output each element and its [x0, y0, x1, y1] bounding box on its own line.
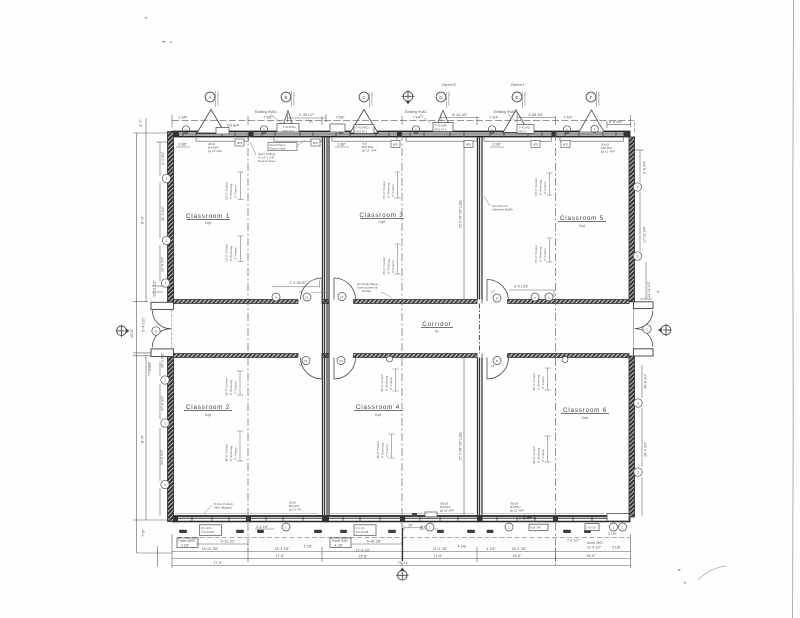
svg-text:5' Shelving: 5' Shelving: [537, 375, 541, 390]
svg-text:Existing HVAC: Existing HVAC: [494, 110, 517, 114]
svg-text:15'-0" Center: 15'-0" Center: [225, 182, 229, 200]
svg-text:1: 1: [166, 239, 168, 243]
svg-text:10'-2 5/8": 10'-2 5/8": [161, 352, 165, 368]
svg-text:2" Frame: 2" Frame: [543, 248, 547, 261]
svg-text:11'-4 1/2": 11'-4 1/2": [587, 546, 602, 550]
svg-text:3 3/8": 3 3/8": [178, 143, 188, 147]
svg-text:5' Shelving: 5' Shelving: [381, 443, 385, 458]
svg-text:4 1/8": 4 1/8": [486, 547, 496, 551]
svg-text:11'-5 3/4": 11'-5 3/4": [161, 205, 165, 221]
svg-text:10'-11 1/2": 10'-11 1/2": [153, 279, 157, 297]
svg-text:4 1/8": 4 1/8": [612, 546, 622, 550]
svg-text:6P5: 6P5: [563, 143, 569, 147]
svg-text:7 5/8": 7 5/8": [335, 115, 345, 119]
svg-text:@ 12' AFF: @ 12' AFF: [440, 509, 454, 513]
svg-text:Corridor: Corridor: [422, 321, 452, 328]
svg-text:3C: 3C: [309, 120, 314, 124]
svg-text:5' Shelving: 5' Shelving: [539, 180, 543, 195]
svg-text:15'-8": 15'-8": [359, 555, 369, 559]
svg-text:2'-4 3/4": 2'-4 3/4": [161, 151, 165, 165]
svg-text:4 1/8": 4 1/8": [457, 545, 467, 549]
svg-text:DX B/A: DX B/A: [227, 124, 239, 128]
svg-text:Parent 1: Parent 1: [511, 83, 525, 87]
svg-text:20'-6 7/8" VIF Lalsb: 20'-6 7/8" VIF Lalsb: [459, 200, 463, 228]
svg-text:M16 M-1: M16 M-1: [356, 129, 368, 133]
svg-text:15'-4 7/8": 15'-4 7/8": [275, 547, 291, 551]
svg-text:40'-6": 40'-6": [130, 328, 134, 338]
svg-text:1: 1: [164, 422, 166, 426]
svg-text:Classroom: Classroom: [370, 92, 374, 106]
svg-text:@ 12' A2: @ 12' A2: [289, 508, 301, 512]
svg-text:7'-8": 7'-8": [141, 528, 146, 537]
svg-text:Classroom: Classroom: [447, 92, 451, 106]
svg-text:6P5: 6P5: [466, 143, 472, 147]
svg-text:15'-0" Center: 15'-0" Center: [382, 181, 386, 199]
svg-text:2'-6 1/2": 2'-6 1/2": [567, 539, 580, 543]
svg-text:34'-0 3/4": 34'-0 3/4": [160, 449, 164, 465]
svg-text:1: 1: [566, 128, 568, 132]
svg-text:T/A 9/128: T/A 9/128: [201, 530, 214, 534]
svg-text:15'-8": 15'-8": [513, 554, 523, 558]
svg-text:2'-9 1/16": 2'-9 1/16": [514, 285, 530, 289]
svg-text:5' Shelving: 5' Shelving: [229, 246, 233, 261]
svg-text:9: 9: [155, 330, 157, 334]
svg-text:3 3/8": 3 3/8": [178, 115, 188, 119]
svg-text:Return Wall: Return Wall: [270, 147, 286, 151]
svg-text:5' Shelving: 5' Shelving: [229, 380, 233, 395]
svg-text:Adhesive BaPle: Adhesive BaPle: [492, 208, 514, 212]
svg-text:3: 3: [637, 471, 639, 475]
svg-text:M16 M-1: M16 M-1: [435, 127, 447, 131]
svg-text:Parent E: Parent E: [442, 83, 457, 87]
svg-text:B: B: [496, 359, 498, 363]
svg-text:Classroom 4: Classroom 4: [356, 404, 400, 411]
svg-text:A: A: [209, 95, 212, 100]
svg-text:2" Frame: 2" Frame: [391, 184, 395, 197]
svg-text:4'-4 1/4": 4'-4 1/4": [256, 525, 269, 529]
svg-text:5' Shelving: 5' Shelving: [537, 448, 541, 463]
svg-text:Classroom: Classroom: [292, 92, 296, 106]
svg-text:B: B: [496, 296, 498, 300]
svg-text:35'-6" Center: 35'-6" Center: [225, 444, 229, 462]
svg-text:2'-49 1/2": 2'-49 1/2": [299, 113, 315, 117]
svg-text:12': 12': [491, 290, 495, 294]
svg-text:1: 1: [263, 128, 265, 132]
svg-text:1: 1: [166, 177, 168, 181]
svg-text:E: E: [516, 95, 519, 100]
svg-text:12': 12': [491, 364, 495, 368]
svg-text:4 1/8": 4 1/8": [303, 545, 313, 549]
svg-text:15'-0" Center: 15'-0" Center: [534, 245, 538, 263]
svg-text:T/A 9/128: T/A 9/128: [356, 530, 369, 534]
svg-text:5'-8 7/8": 5'-8 7/8": [519, 517, 532, 521]
svg-text:2" Frame: 2" Frame: [234, 247, 238, 260]
svg-text:2" Frame: 2" Frame: [234, 381, 238, 394]
svg-text:1: 1: [164, 483, 166, 487]
svg-text:Classroom 6: Classroom 6: [563, 407, 607, 414]
svg-text:40'-8 3/4": 40'-8 3/4": [644, 373, 648, 389]
svg-text:7 3/4": 7 3/4": [489, 115, 499, 119]
svg-text:4'-8 5/8": 4'-8 5/8": [609, 120, 624, 124]
svg-text:M16 1: M16 1: [519, 129, 528, 133]
svg-text:3 1/8": 3 1/8": [608, 532, 618, 536]
svg-text:2" Frame: 2" Frame: [385, 444, 389, 457]
svg-text:@ 12' AFF: @ 12' AFF: [510, 509, 524, 513]
svg-text:@ 12' AFF: @ 12' AFF: [601, 150, 615, 154]
svg-text:79'-11": 79'-11": [398, 561, 409, 565]
svg-text:Classroom 2: Classroom 2: [186, 404, 230, 411]
svg-text:12': 12': [299, 290, 303, 294]
svg-text:11'-4 1/2": 11'-4 1/2": [356, 549, 371, 553]
svg-text:Vent (lagged): Vent (lagged): [214, 506, 232, 510]
svg-text:1: 1: [594, 127, 596, 131]
svg-text:1: 1: [646, 328, 648, 332]
svg-text:3: 3: [637, 186, 639, 190]
svg-text:2" Frame: 2" Frame: [543, 181, 547, 194]
svg-text:6x8 7/8": 6x8 7/8": [531, 526, 542, 530]
svg-text:9'-19 1/2": 9'-19 1/2": [221, 540, 237, 544]
svg-text:45'-0" Center: 45'-0" Center: [532, 373, 536, 391]
svg-text:2" Frame: 2" Frame: [391, 260, 395, 273]
svg-text:Crpt: Crpt: [579, 224, 585, 228]
svg-text:2" Frame: 2" Frame: [234, 185, 238, 198]
svg-text:5'-4 1/2": 5'-4 1/2": [141, 317, 146, 332]
svg-text:6P5: 6P5: [313, 141, 319, 145]
svg-text:8'-4": 8'-4": [140, 434, 145, 443]
svg-text:7'-4 15/16": 7'-4 15/16": [290, 281, 307, 285]
svg-text:Crpt: Crpt: [582, 416, 588, 420]
svg-text:Classroom 3: Classroom 3: [359, 212, 403, 219]
svg-text:17'-11 3/4": 17'-11 3/4": [643, 225, 647, 243]
svg-text:4'-88 3/4": 4'-88 3/4": [528, 113, 544, 117]
svg-text:1: 1: [185, 128, 187, 132]
svg-text:15'-0" Center: 15'-0" Center: [382, 257, 386, 275]
svg-text:8'-44 1/2": 8'-44 1/2": [452, 113, 468, 117]
svg-text:2 0n 0n: 2 0n 0n: [586, 526, 596, 530]
svg-text:Roof Counter: Roof Counter: [258, 159, 276, 163]
svg-text:8'-0": 8'-0": [140, 215, 145, 224]
svg-text:9C: 9C: [304, 359, 308, 363]
svg-text:27'-3 7/8" VIF Lalsb: 27'-3 7/8" VIF Lalsb: [459, 432, 463, 460]
svg-text:Classroom 1: Classroom 1: [186, 213, 230, 220]
svg-text:6C: 6C: [340, 295, 344, 299]
svg-text:Existing HVAC: Existing HVAC: [255, 110, 278, 114]
svg-text:11'-8": 11'-8": [434, 554, 443, 558]
svg-text:5' Shelving: 5' Shelving: [229, 446, 233, 461]
svg-text:35'-6" Center: 35'-6" Center: [376, 441, 380, 459]
svg-text:Classroom: Classroom: [597, 92, 601, 106]
svg-text:Crpt: Crpt: [375, 413, 381, 417]
svg-text:Panel 36RD: Panel 36RD: [179, 539, 197, 543]
svg-text:Classroom: Classroom: [216, 92, 220, 106]
svg-text:30'-4 3/4": 30'-4 3/4": [644, 441, 648, 457]
svg-text:5' Shelving: 5' Shelving: [385, 376, 389, 391]
svg-text:Crpt: Crpt: [205, 413, 211, 417]
svg-text:5' Shelving: 5' Shelving: [229, 184, 233, 199]
svg-text:2" Frame: 2" Frame: [389, 377, 393, 390]
svg-text:15'-0" Center: 15'-0" Center: [534, 178, 538, 196]
svg-text:4 1/8": 4 1/8": [335, 544, 343, 548]
svg-text:7 3/4": 7 3/4": [412, 115, 422, 119]
svg-text:5' Shelving: 5' Shelving: [539, 247, 543, 262]
svg-text:7 3/4": 7 3/4": [563, 115, 573, 119]
svg-text:2" Frame: 2" Frame: [541, 449, 545, 462]
svg-text:5' Shelving: 5' Shelving: [387, 183, 391, 198]
svg-text:6C: 6C: [305, 295, 309, 299]
svg-text:5' Shelving: 5' Shelving: [387, 259, 391, 274]
svg-text:1: 1: [164, 379, 166, 383]
svg-text:3: 3: [637, 402, 639, 406]
svg-text:4'-7": 4'-7": [138, 118, 143, 127]
svg-text:15'-8": 15'-8": [587, 554, 597, 558]
svg-text:12': 12': [299, 363, 303, 367]
svg-text:15'-0x 7/8": 15'-0x 7/8": [202, 547, 219, 551]
svg-text:17'-8": 17'-8": [276, 554, 286, 558]
svg-text:20": 20": [408, 524, 414, 528]
svg-text:C: C: [362, 95, 365, 100]
svg-text:@ 12' AFF: @ 12' AFF: [208, 149, 222, 153]
svg-text:45'-0" Center: 45'-0" Center: [225, 378, 229, 396]
svg-text:7 5/8": 7 5/8": [263, 115, 273, 119]
svg-text:15'-0" Center: 15'-0" Center: [225, 244, 229, 262]
svg-text:M16 M-1: M16 M-1: [283, 129, 295, 133]
svg-text:6P5: 6P5: [533, 143, 539, 147]
svg-text:17'-0": 17'-0": [214, 561, 224, 565]
svg-text:Divider: Divider: [362, 289, 371, 293]
svg-text:35'-6" Center: 35'-6" Center: [532, 446, 536, 464]
svg-text:F: F: [590, 95, 593, 100]
svg-text:4 1/8": 4 1/8": [181, 544, 189, 548]
svg-text:5'-48 1/8": 5'-48 1/8": [367, 540, 383, 544]
svg-text:6P5: 6P5: [237, 141, 243, 145]
svg-text:2" Frame: 2" Frame: [234, 447, 238, 460]
svg-text:Classroom 5: Classroom 5: [560, 215, 604, 222]
svg-text:12'-8 3/4": 12'-8 3/4": [161, 256, 165, 272]
svg-text:Rx: Rx: [435, 330, 439, 334]
svg-text:Crpt: Crpt: [378, 220, 384, 224]
svg-text:B: B: [285, 95, 288, 100]
svg-text:Classroom: Classroom: [523, 92, 527, 106]
svg-text:3: 3: [637, 255, 639, 259]
svg-text:15'-4 7/8": 15'-4 7/8": [512, 547, 528, 551]
svg-text:8C: 8C: [339, 359, 343, 363]
svg-text:11'-4 7/8": 11'-4 7/8": [433, 547, 448, 551]
svg-text:Crpt: Crpt: [205, 221, 211, 225]
svg-text:1 3/4": 1 3/4": [148, 361, 152, 371]
svg-text:Panel RAD: Panel RAD: [332, 539, 348, 543]
svg-text:3 3/8": 3 3/8": [492, 143, 502, 147]
svg-text:D: D: [439, 95, 442, 100]
svg-text:1: 1: [415, 128, 417, 132]
svg-text:@ 12" AFF: @ 12" AFF: [362, 149, 377, 153]
svg-text:Acurt 4927: Acurt 4927: [587, 541, 604, 545]
svg-text:2'-8 3/4": 2'-8 3/4": [643, 160, 647, 174]
svg-text:47'-8 3/4": 47'-8 3/4": [161, 395, 165, 411]
svg-text:3 3/8": 3 3/8": [337, 143, 347, 147]
svg-text:1: 1: [165, 282, 167, 286]
svg-text:1: 1: [491, 128, 493, 132]
svg-text:2" Frame: 2" Frame: [541, 376, 545, 389]
svg-text:6P5: 6P5: [393, 143, 399, 147]
svg-text:45'-0" Center: 45'-0" Center: [380, 374, 384, 392]
svg-text:Existing HVAC: Existing HVAC: [405, 110, 428, 114]
svg-text:20'-11 1/2": 20'-11 1/2": [647, 280, 651, 298]
